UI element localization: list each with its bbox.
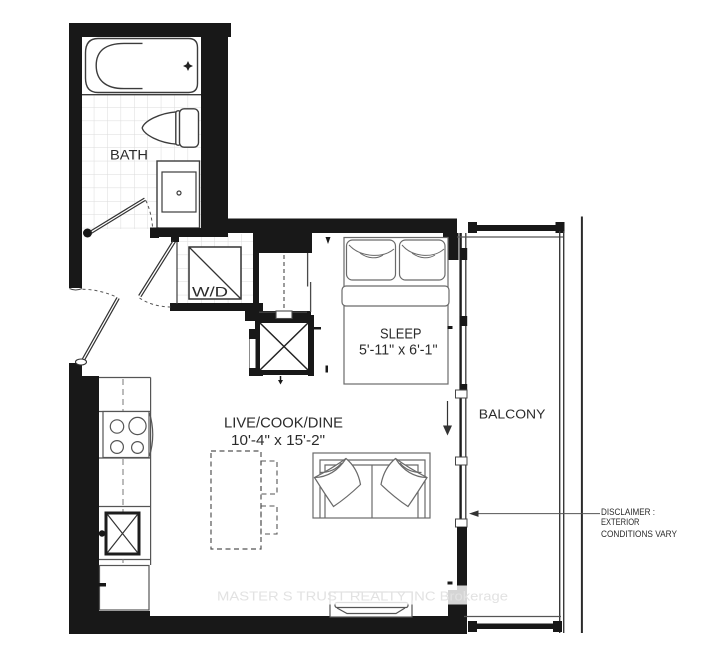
svg-text:5'-11" x 6'-1": 5'-11" x 6'-1" xyxy=(359,342,438,358)
svg-text:EXTERIOR: EXTERIOR xyxy=(601,517,640,527)
svg-text:DISCLAIMER :: DISCLAIMER : xyxy=(601,507,655,517)
svg-text:BATH: BATH xyxy=(110,147,148,163)
svg-text:BALCONY: BALCONY xyxy=(479,407,546,422)
svg-text:CONDITIONS VARY: CONDITIONS VARY xyxy=(601,529,677,539)
svg-text:W/D: W/D xyxy=(192,283,228,299)
svg-text:SLEEP: SLEEP xyxy=(380,326,422,343)
svg-text:10'-4" x 15'-2": 10'-4" x 15'-2" xyxy=(231,433,325,449)
svg-text:LIVE/COOK/DINE: LIVE/COOK/DINE xyxy=(224,415,343,431)
svg-text:MASTER S TRUST REALTY INC Bro: MASTER S TRUST REALTY INC Brokerage xyxy=(217,589,508,603)
